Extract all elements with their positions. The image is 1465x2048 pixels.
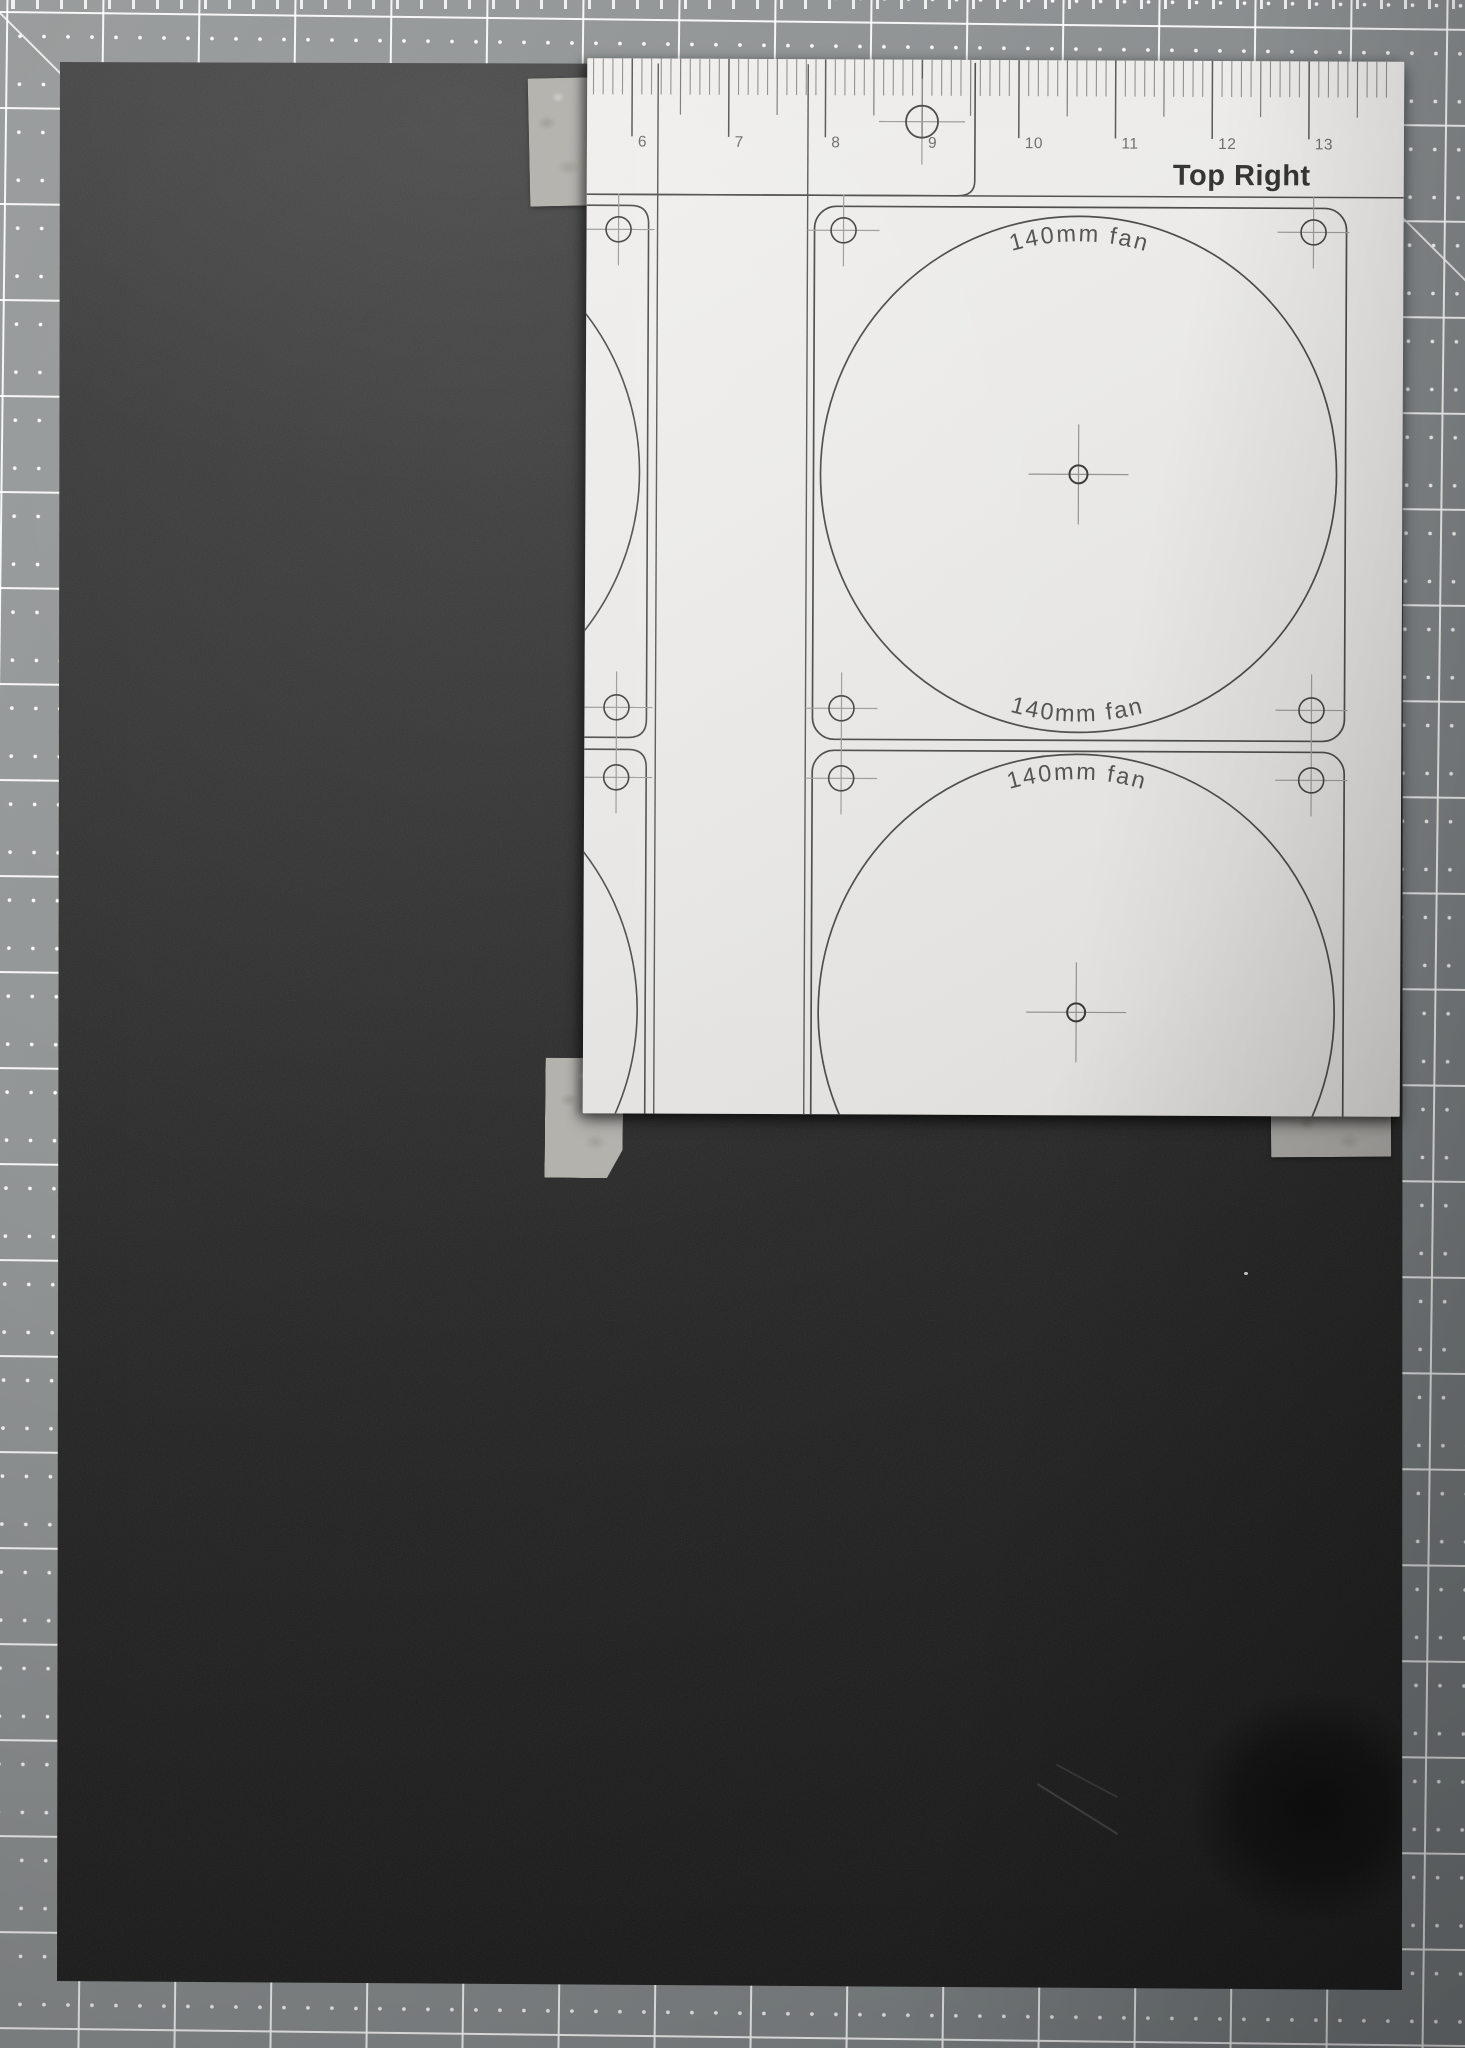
fan-center-mark: [1028, 424, 1128, 524]
fan-size-label-text: 140mm fan: [1006, 220, 1153, 257]
fan-size-label-text: 140mm fan: [1004, 758, 1151, 795]
fan-center-mark: [1026, 962, 1126, 1062]
board-speck: [1244, 1272, 1248, 1275]
fan-template-drawing: 678910111213 140mm fan 1: [583, 58, 1405, 1117]
ruler-number: 7: [735, 134, 744, 151]
board-scratch: [1056, 1764, 1119, 1799]
screw-hole-mark: [583, 193, 655, 265]
screw-hole-mark: [805, 672, 877, 744]
cut-line-left: [654, 64, 659, 1114]
ruler-baseline: [587, 194, 1404, 198]
masking-tape-top: [528, 77, 591, 206]
screw-hole-mark: [1275, 744, 1347, 816]
screw-hole-mark: [805, 742, 877, 814]
fan-size-label: 140mm fan: [1008, 691, 1146, 727]
ruler-number: 13: [1315, 136, 1333, 153]
cut-line-right: [804, 64, 809, 1114]
ruler-number: 6: [638, 133, 647, 150]
scene: 678910111213 140mm fan 1: [0, 0, 1465, 2048]
fan-frame-bottom: [811, 750, 1345, 1117]
mat-edge-ticks: [0, 0, 1465, 9]
fan-size-label: 140mm fan: [1004, 758, 1151, 795]
ruler-corner-box-line: [587, 61, 976, 196]
registration-mark: [879, 78, 965, 164]
board-dark-patch: [1195, 1695, 1430, 1920]
screw-hole-mark: [583, 741, 653, 813]
fan-size-label-text: 140mm fan: [1008, 691, 1146, 727]
ruler-number: 8: [831, 134, 840, 151]
ruler-number: 9: [928, 135, 937, 152]
ruler-number: 10: [1025, 135, 1043, 152]
ruler-ticks: 678910111213: [593, 58, 1386, 153]
fan-size-label: 140mm fan: [1006, 220, 1153, 257]
left-fan-circle-top: [583, 212, 641, 730]
left-fan-circle-bottom: [583, 750, 639, 1117]
screw-hole-mark: [807, 194, 879, 266]
corner-label: Top Right: [1162, 160, 1322, 194]
screw-hole-mark: [1277, 196, 1349, 268]
ruler-number: 12: [1218, 136, 1236, 153]
ruler-number: 11: [1121, 136, 1138, 153]
left-fan-frame-bottom: [583, 749, 647, 1116]
paper-template-sheet: 678910111213 140mm fan 1: [583, 58, 1405, 1117]
